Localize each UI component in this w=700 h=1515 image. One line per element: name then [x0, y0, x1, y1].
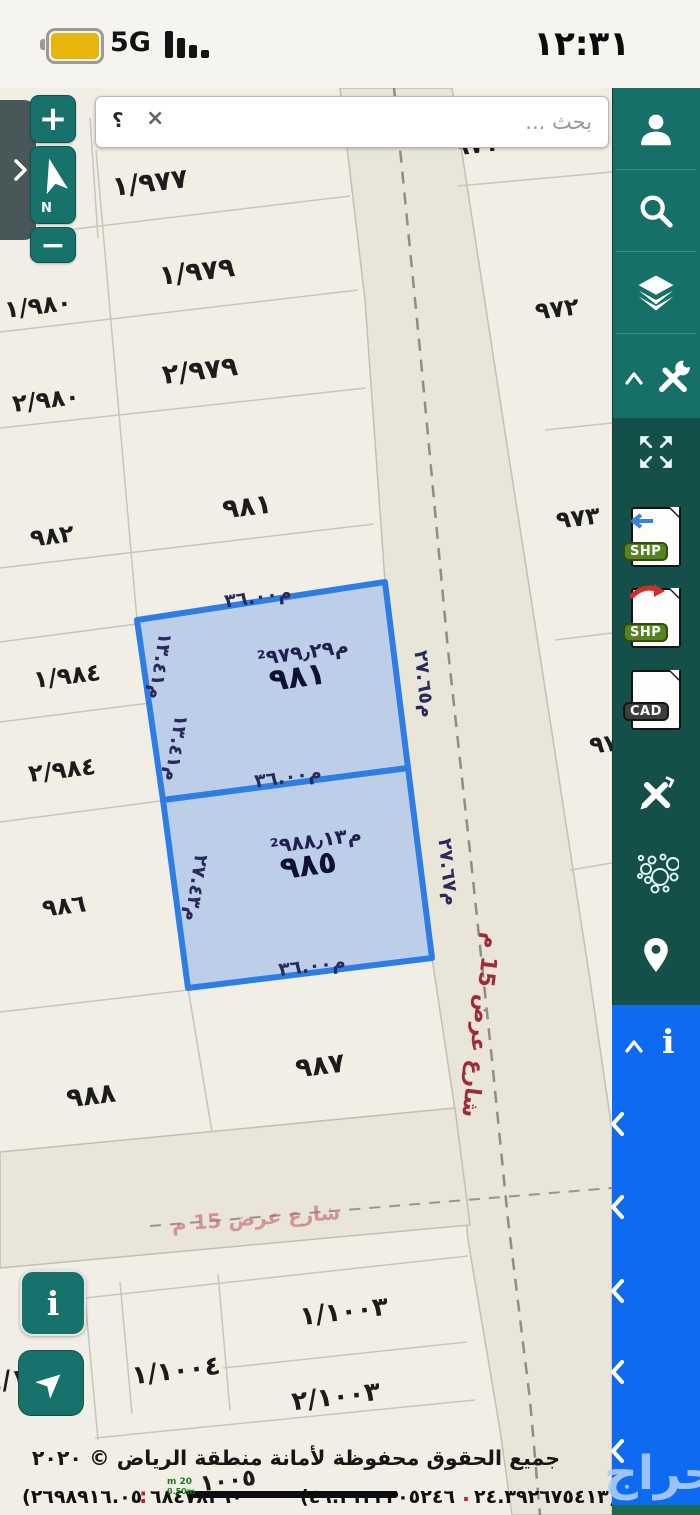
network-type-label: 5G: [110, 27, 151, 58]
map-info-button[interactable]: i: [20, 1270, 86, 1336]
collapse-chevron-icon[interactable]: [608, 1111, 626, 1137]
sidebar-item-clusters[interactable]: [612, 848, 700, 896]
chevron-right-icon: [10, 158, 30, 182]
status-bar: 5G ١٢:٣١: [0, 0, 700, 88]
sidebar-item-shp-import[interactable]: SHP: [612, 507, 700, 567]
coordinate-left-2: ٦٨٤٧٨٢٦٠: [150, 1486, 243, 1508]
sidebar-item-draw-measure[interactable]: [612, 770, 700, 818]
chevron-up-icon: [624, 1038, 644, 1054]
parcel-label: ٩٨٢: [28, 519, 75, 552]
watermark-logo: حراج: [604, 1446, 700, 1501]
map-canvas[interactable]: ١/٩٧٧ ٩٧١ ١/٩٧٩ ٩٧٢ ١/٩٨٠ ٢/٩٧٩ ٢/٩٨٠ ٩٨…: [0, 88, 612, 1515]
bottom-strip: [612, 1505, 700, 1515]
collapse-chevron-icon[interactable]: [608, 1278, 626, 1304]
compass-button[interactable]: N: [30, 146, 76, 224]
coordinate-right-2: ٢٤.٣٩٢٦٧٥٤١٣): [474, 1486, 617, 1508]
parcel-label: ٩٧٢: [533, 292, 580, 325]
scale-label-bottom: 0.50m: [167, 1487, 195, 1496]
sidebar: SHP SHP CAD: [612, 88, 700, 1515]
coordinate-left: (٢٦٩٨٩١٦.٠٥: [22, 1486, 142, 1508]
arrow-curved-right-icon: [629, 582, 665, 600]
my-location-button[interactable]: [18, 1350, 84, 1416]
copyright-text: جميع الحقوق محفوظة لأمانة منطقة الرياض ©…: [95, 1446, 560, 1470]
info-icon: i: [47, 1284, 60, 1323]
cad-badge: CAD: [623, 702, 669, 721]
parcel-label: ٩٨٨: [65, 1078, 118, 1115]
compass-north-label: N: [41, 201, 52, 216]
person-icon: [635, 108, 677, 150]
collapse-chevron-icon[interactable]: [608, 1194, 626, 1220]
sidebar-item-fullscreen[interactable]: [612, 428, 700, 476]
signal-strength-icon: [165, 31, 217, 58]
parcel-label: ٩٨٧: [294, 1048, 347, 1085]
pencil-ruler-icon: [636, 774, 676, 814]
shp-import-document-icon: SHP: [631, 507, 681, 567]
info-icon: i: [662, 1022, 675, 1061]
parcel-label: ٩٨٦: [40, 889, 87, 922]
sidebar-item-info-panel[interactable]: i: [612, 1016, 700, 1068]
search-help-icon[interactable]: ؟: [112, 108, 124, 132]
clock-label: ١٢:٣١: [533, 24, 630, 64]
expand-arrows-icon: [637, 433, 675, 471]
layers-icon: [635, 272, 677, 314]
search-input[interactable]: [96, 97, 608, 147]
sidebar-item-tools[interactable]: [612, 340, 700, 410]
bubbles-cluster-icon: [633, 849, 679, 895]
search-icon: [636, 191, 676, 231]
arrow-left-icon: [625, 513, 655, 529]
tools-icon: [654, 358, 692, 396]
coordinate-separator: :: [139, 1484, 147, 1508]
zoom-out-button[interactable]: −: [30, 227, 76, 263]
cad-document-icon: CAD: [631, 670, 681, 730]
chevron-up-icon: [624, 370, 644, 386]
battery-icon: [46, 28, 104, 64]
zoom-in-button[interactable]: +: [30, 95, 76, 143]
sidebar-item-account[interactable]: [612, 94, 700, 164]
sidebar-item-shp-export[interactable]: SHP: [612, 588, 700, 648]
app-root: ١/٩٧٧ ٩٧١ ١/٩٧٩ ٩٧٢ ١/٩٨٠ ٢/٩٧٩ ٢/٩٨٠ ٩٨…: [0, 0, 700, 1515]
parcel-label: ٩٧٣: [554, 501, 601, 534]
shp-export-document-icon: SHP: [631, 588, 681, 648]
shp-badge: SHP: [623, 623, 668, 642]
coordinate-separator: .: [462, 1482, 470, 1506]
search-clear-icon[interactable]: ×: [146, 106, 164, 131]
sidebar-item-search[interactable]: [612, 176, 700, 246]
collapse-chevron-icon[interactable]: [608, 1359, 626, 1385]
sidebar-item-locate-parcel[interactable]: [612, 934, 700, 976]
sidebar-item-layers[interactable]: [612, 258, 700, 328]
parcel-label: ٩٨١: [221, 489, 274, 526]
navigation-arrow-icon: [36, 1368, 66, 1398]
search-bar: ؟ ×: [95, 96, 609, 148]
scale-label-top: m 20: [167, 1477, 192, 1487]
shp-badge: SHP: [623, 542, 668, 561]
location-pin-icon: [642, 937, 670, 973]
sidebar-item-cad-export[interactable]: CAD: [612, 670, 700, 730]
compass-north-icon: N: [33, 152, 73, 218]
